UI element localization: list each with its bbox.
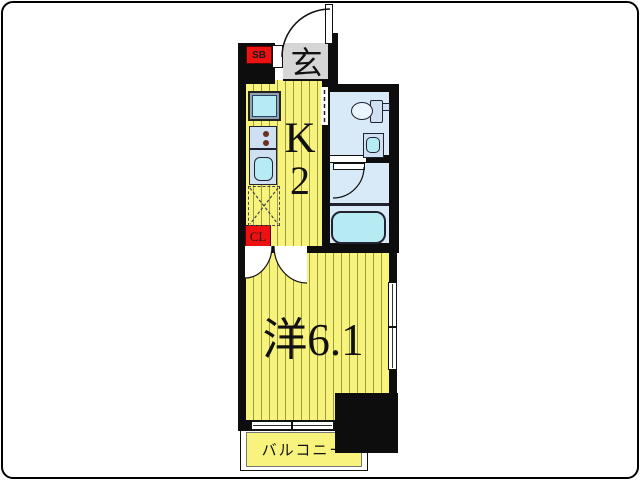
kitchen-sink bbox=[254, 157, 273, 181]
stove-burner-2 bbox=[263, 140, 269, 146]
toilet-bowl bbox=[351, 102, 373, 120]
stove-burner-1 bbox=[263, 131, 269, 137]
bathtub bbox=[331, 211, 386, 244]
entrance-door-leaf bbox=[325, 4, 333, 44]
wall-toilet-top bbox=[322, 84, 399, 92]
closet-label: CL bbox=[245, 225, 271, 249]
western-room-label-text: 洋6.1 bbox=[262, 303, 363, 368]
washing-machine-pan bbox=[252, 95, 277, 117]
wall-room-top-stub-2 bbox=[307, 246, 322, 253]
closet-text: CL bbox=[250, 229, 267, 245]
western-room-label: 洋6.1 bbox=[233, 308, 393, 362]
bath-door-opening bbox=[330, 156, 366, 162]
entrance-door-frame bbox=[272, 45, 283, 68]
kitchen-label-size: 2 bbox=[281, 161, 319, 201]
counter-divider bbox=[249, 148, 277, 150]
floor-plan: バルコニー SB CL bbox=[0, 0, 640, 480]
balcony-window-center-tick bbox=[291, 421, 293, 430]
balcony-label-text: バルコニー bbox=[262, 439, 347, 460]
refrigerator-space bbox=[248, 186, 280, 226]
wall-room-top-stub-1 bbox=[269, 246, 284, 253]
wall-block-right bbox=[389, 84, 399, 253]
shoe-box-label: SB bbox=[246, 46, 272, 64]
bath-door-leaf bbox=[333, 163, 365, 170]
bath-divider-line bbox=[330, 203, 389, 206]
wall-bath-bottom bbox=[322, 243, 399, 253]
entrance-label: 玄 bbox=[283, 42, 330, 80]
kitchen-label-letter: K bbox=[281, 116, 319, 161]
shoe-box-text: SB bbox=[252, 50, 266, 61]
balcony-window-rail bbox=[253, 425, 332, 426]
wash-basin-bowl bbox=[366, 137, 380, 153]
partition-notch bbox=[321, 87, 328, 125]
entrance-label-text: 玄 bbox=[290, 38, 322, 84]
kitchen-label: K 2 bbox=[281, 116, 319, 206]
structural-pillar-block bbox=[335, 393, 398, 453]
toilet-tap bbox=[382, 103, 390, 111]
